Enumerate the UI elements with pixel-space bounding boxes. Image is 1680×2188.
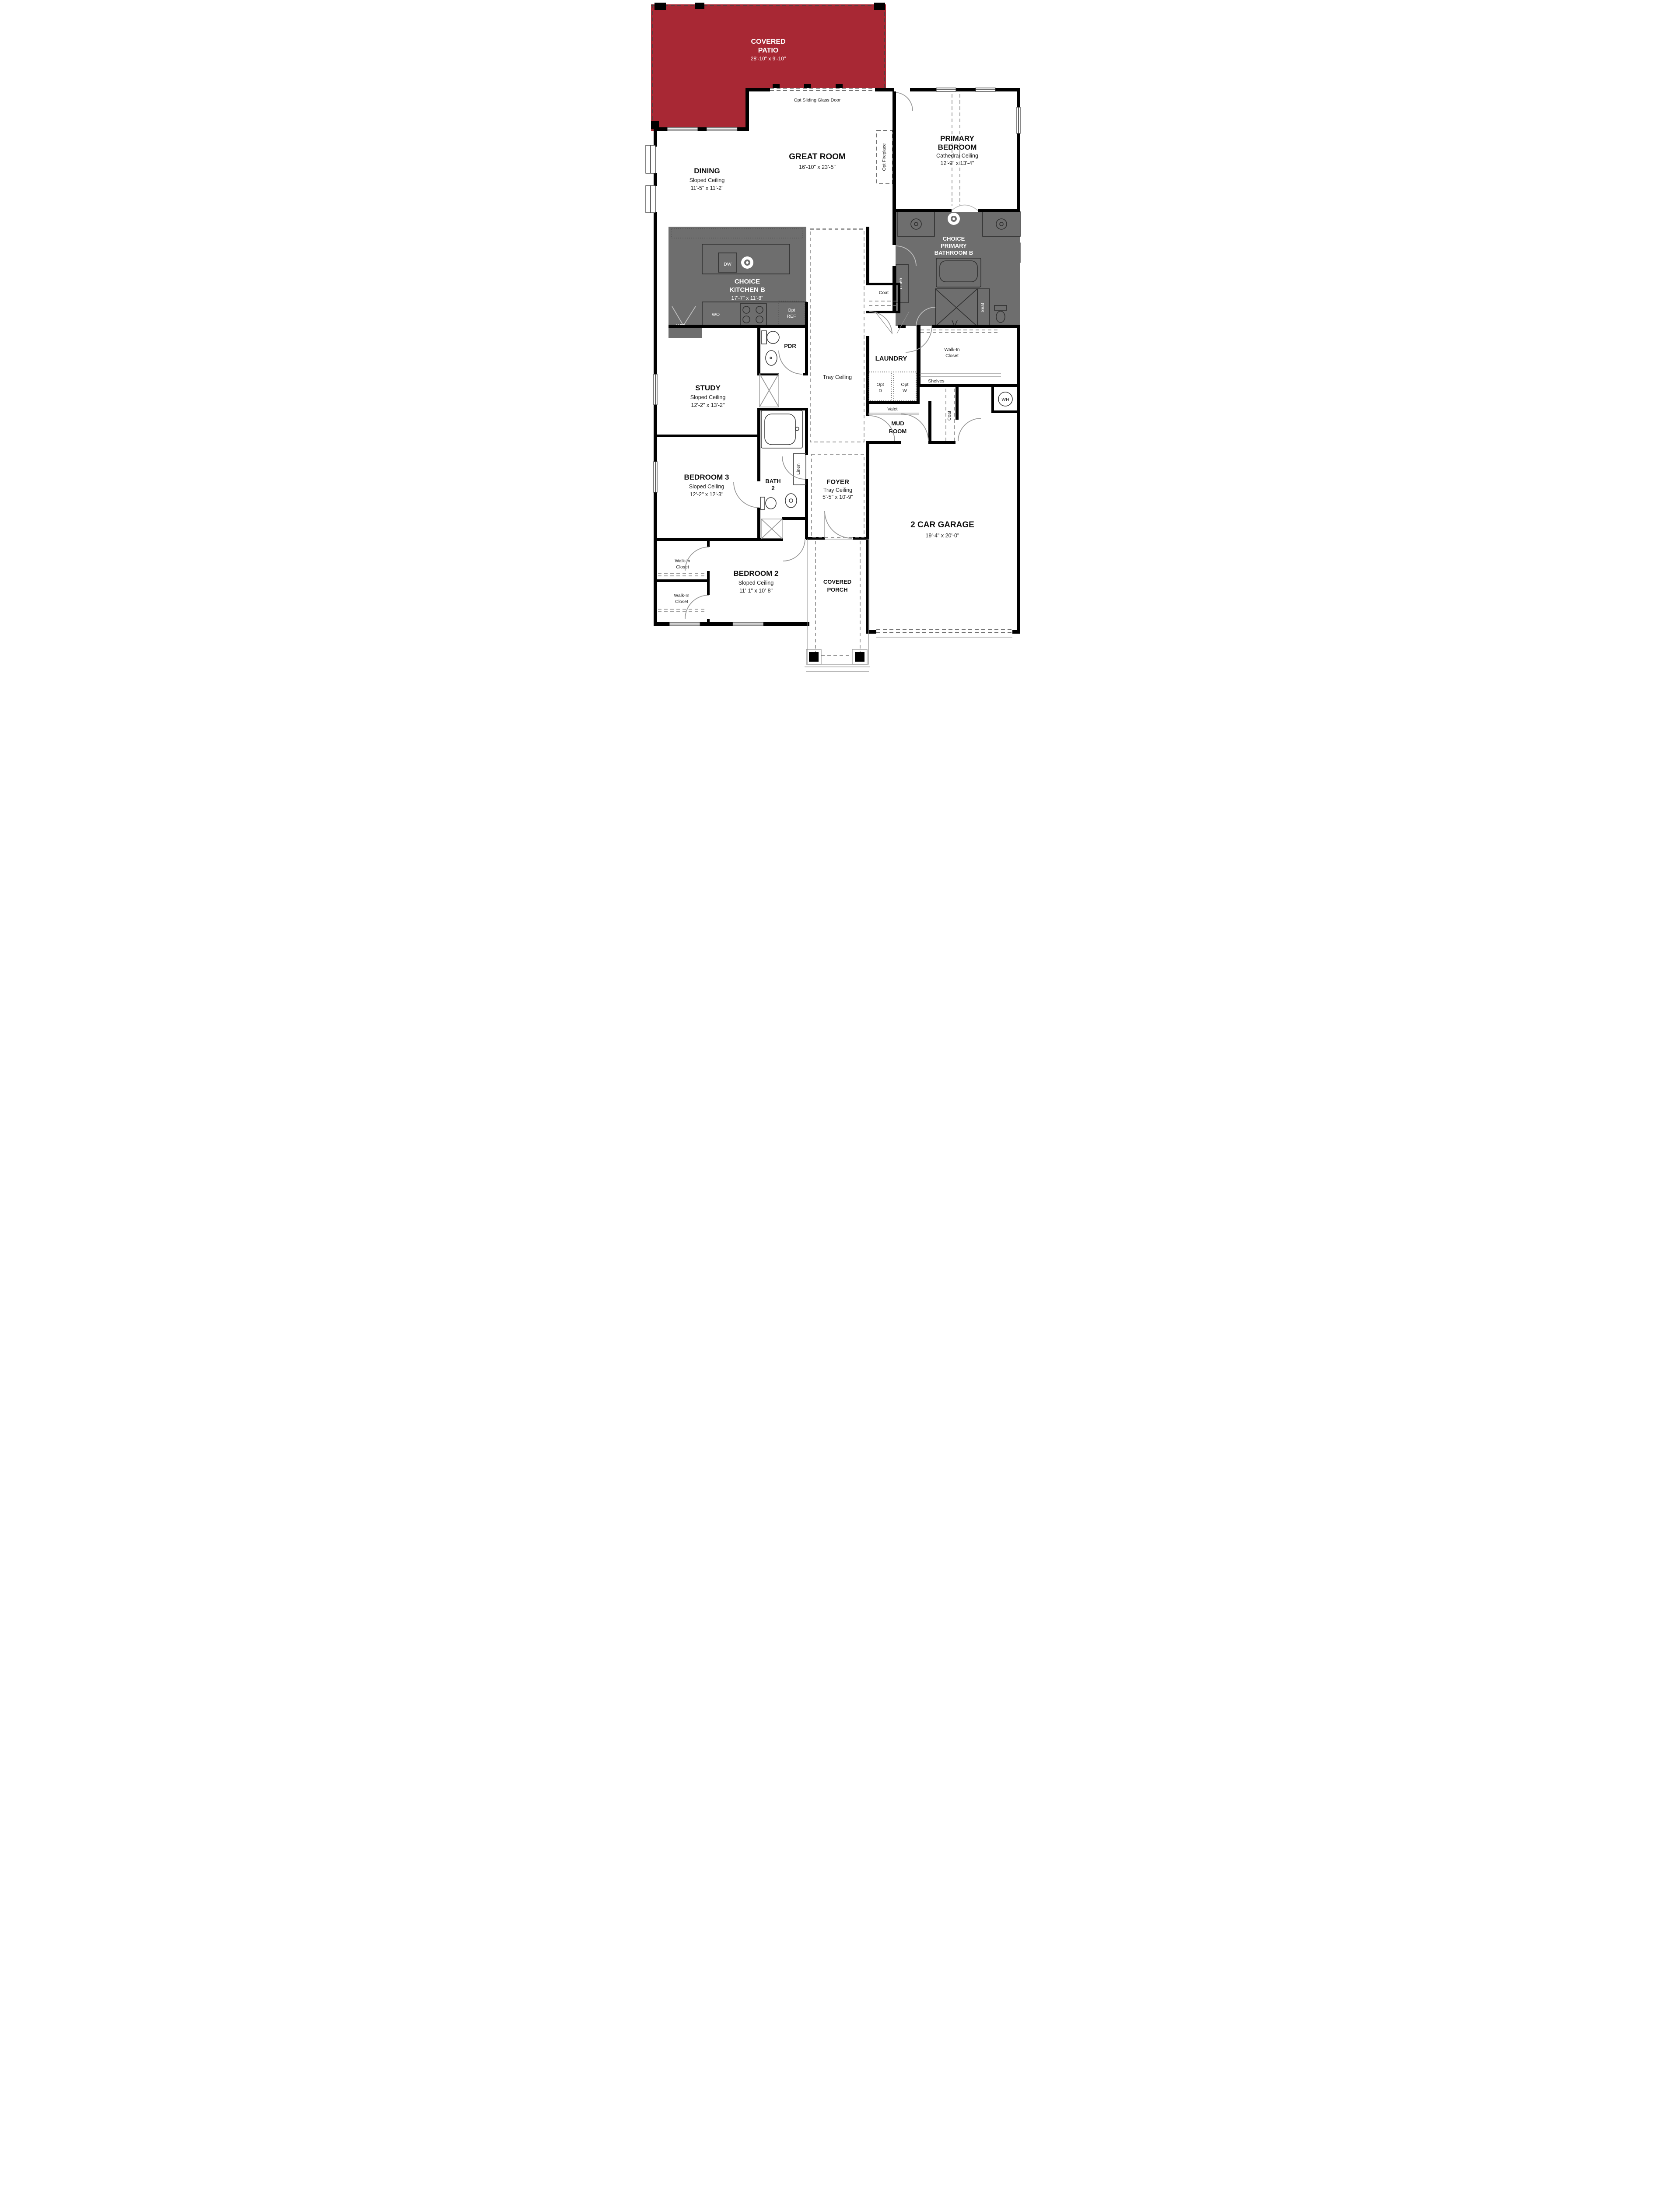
foyer-ceiling: Tray Ceiling: [823, 487, 852, 493]
study-double-door: [759, 374, 779, 407]
bathroom-name-3: BATHROOM B: [934, 249, 973, 256]
kitchen-name-1: CHOICE: [735, 278, 760, 285]
svg-text:D: D: [878, 388, 882, 393]
bathroom-name-2: PRIMARY: [941, 242, 967, 249]
dishwasher-label: DW: [724, 262, 731, 267]
study-name: STUDY: [695, 384, 721, 392]
seat-label: Seat: [980, 303, 985, 312]
window: [654, 462, 657, 492]
bathroom-name-1: CHOICE: [943, 235, 965, 242]
linen-closet: Linen: [794, 453, 806, 485]
floor-plan: COVERED PATIO 28'-10" x 9'-10": [630, 0, 1050, 700]
door-arc: [783, 539, 805, 561]
primary-bedroom-name-1: PRIMARY: [940, 134, 974, 143]
patio-name-1: COVERED: [751, 38, 785, 46]
room-mud-room: Valet MUD ROOM: [868, 407, 928, 441]
porch-steps: [805, 667, 870, 671]
window: [654, 374, 657, 405]
walk-in-pantry: WIP: [668, 305, 702, 338]
window-bay: [646, 145, 655, 173]
porch-name-2: PORCH: [827, 586, 848, 593]
room-walk-in-closet-a: Walk-In Closet: [658, 547, 709, 576]
coat-garage-label: Coat: [947, 411, 952, 421]
svg-text:Opt: Opt: [877, 382, 884, 387]
door-arc: [958, 418, 981, 441]
toilet-icon: [762, 331, 779, 344]
garage-name: 2 CAR GARAGE: [910, 520, 974, 529]
room-primary-bedroom: PRIMARY BEDROOM Cathedral Ceiling 12'-9"…: [892, 91, 978, 206]
coat-label: Coat: [879, 290, 889, 295]
room-great-room: GREAT ROOM 16'-10" x 23'-5" Opt Fireplac…: [789, 130, 892, 229]
room-pdr: PDR: [762, 331, 802, 374]
primary-bedroom-ceiling: Cathedral Ceiling: [936, 153, 978, 159]
room-bedroom-3: BEDROOM 3 Sloped Ceiling 12'-2" x 12'-3": [684, 473, 759, 508]
tray-ceiling-outline: [810, 230, 864, 442]
study-dims: 12'-2" x 13'-2": [691, 402, 725, 408]
window: [733, 622, 763, 626]
opt-sliding-glass-door: Opt Sliding Glass Door: [770, 88, 875, 103]
foyer-dims: 5'-5" x 10'-9": [822, 494, 853, 500]
front-door-arc: [825, 511, 852, 538]
door-arc: [901, 414, 928, 441]
closet-b-name-2: Closet: [675, 599, 688, 604]
bedroom-3-name: BEDROOM 3: [684, 473, 729, 481]
room-bedroom-2: BEDROOM 2 Sloped Ceiling 11'-1" x 10'-8": [734, 519, 805, 594]
opt-fireplace-label: Opt Fireplace: [882, 143, 887, 171]
opt-sliding-glass-door-label: Opt Sliding Glass Door: [794, 98, 841, 103]
window: [936, 88, 956, 91]
room-covered-patio: COVERED PATIO 28'-10" x 9'-10": [651, 3, 886, 131]
laundry-name: LAUNDRY: [875, 355, 907, 362]
study-ceiling: Sloped Ceiling: [690, 394, 726, 400]
bedroom-3-ceiling: Sloped Ceiling: [689, 484, 724, 490]
closet-a-name-2: Closet: [676, 565, 689, 570]
window: [669, 622, 700, 626]
garage-dims: 19'-4" x 20'-0": [926, 533, 959, 539]
svg-text:Opt: Opt: [788, 308, 795, 313]
closet-b-name-1: Walk-In: [674, 593, 689, 598]
pdr-label: PDR: [784, 343, 796, 349]
room-choice-kitchen-b: DW CHOICE KITCHEN B 17'-7" x 11'-8" WO O…: [668, 227, 806, 338]
bath-2-name-1: BATH: [765, 478, 780, 484]
room-bath-2: BATH 2 Linen: [760, 410, 806, 509]
valet-label: Valet: [887, 407, 897, 412]
primary-bedroom-name-2: BEDROOM: [938, 143, 977, 151]
primary-closet-name-1: Walk-In: [944, 347, 959, 352]
kitchen-dims: 17'-7" x 11'-8": [731, 295, 763, 301]
tub-icon: [761, 410, 802, 448]
patio-floor: [651, 4, 886, 131]
patio-name-2: PATIO: [758, 47, 779, 54]
door-arc: [734, 482, 759, 508]
wh-label: WH: [1001, 397, 1009, 402]
svg-text:Opt: Opt: [901, 382, 909, 387]
floor-plan-page: COVERED PATIO 28'-10" x 9'-10": [630, 0, 1050, 700]
pedestal-sink-icon: [766, 351, 777, 365]
patio-dims: 28'-10" x 9'-10": [751, 56, 786, 62]
choice-badge-icon: [948, 213, 960, 225]
hall-tray-ceiling: Tray Ceiling: [810, 230, 864, 442]
door-arc: [869, 312, 892, 334]
door-arc: [894, 92, 913, 111]
kitchen-name-2: KITCHEN B: [729, 286, 765, 294]
svg-text:W: W: [903, 388, 907, 393]
room-foyer: FOYER Tray Ceiling 5'-5" x 10'-9": [812, 454, 864, 538]
great-room-dims: 16'-10" x 23'-5": [799, 164, 836, 170]
opt-dryer: Opt D: [869, 372, 892, 401]
porch-name-1: COVERED: [823, 579, 851, 585]
sink-icon: [785, 494, 797, 508]
vestibule-door: [761, 519, 782, 539]
wall-oven-label: WO: [712, 312, 720, 317]
door-arc: [779, 351, 802, 374]
bedroom-2-ceiling: Sloped Ceiling: [738, 580, 774, 586]
coat-garage-hall: Coat: [946, 389, 981, 442]
bedroom-3-dims: 12'-2" x 12'-3": [690, 491, 724, 498]
mud-room-name-1: MUD: [891, 420, 904, 427]
room-covered-porch: COVERED PORCH: [805, 539, 870, 671]
room-study: STUDY Sloped Ceiling 12'-2" x 13'-2": [690, 374, 779, 408]
room-walk-in-closet-b: Walk-In Closet: [658, 593, 709, 619]
svg-text:REF: REF: [787, 314, 796, 319]
door-arc: [685, 595, 709, 619]
bath-2-name-2: 2: [771, 485, 774, 491]
foyer-name: FOYER: [826, 478, 849, 486]
bedroom-opening-arch: [952, 205, 978, 211]
dining-name: DINING: [694, 167, 720, 175]
window-bay: [646, 186, 655, 213]
room-garage: 2 CAR GARAGE 19'-4" x 20'-0": [876, 520, 1012, 637]
tray-ceiling-label: Tray Ceiling: [823, 374, 852, 380]
bedroom-2-dims: 11'-1" x 10'-8": [739, 588, 773, 594]
choice-badge-icon: [741, 256, 753, 269]
great-room-name: GREAT ROOM: [789, 152, 845, 161]
window: [1017, 107, 1020, 133]
room-dining: DINING Sloped Ceiling 11'-5" x 11'-2": [689, 167, 725, 191]
porch-outline: [807, 539, 868, 664]
water-heater: WH: [998, 392, 1012, 406]
dining-ceiling: Sloped Ceiling: [689, 177, 725, 183]
window: [976, 88, 995, 91]
primary-bedroom-dims: 12'-9" x 13'-4": [941, 160, 974, 166]
bedroom-2-name: BEDROOM 2: [734, 569, 779, 578]
dining-dims: 11'-5" x 11'-2": [690, 185, 723, 191]
room-choice-primary-bathroom-b: CHOICE PRIMARY BATHROOM B Seat Linen: [896, 205, 1020, 327]
primary-closet-name-2: Closet: [945, 353, 959, 358]
toilet-icon: [760, 497, 776, 509]
shelves-label: Shelves: [928, 379, 944, 384]
linen-label: Linen: [796, 463, 801, 475]
window: [707, 127, 737, 131]
window: [667, 127, 698, 131]
opt-washer: Opt W: [893, 372, 916, 401]
